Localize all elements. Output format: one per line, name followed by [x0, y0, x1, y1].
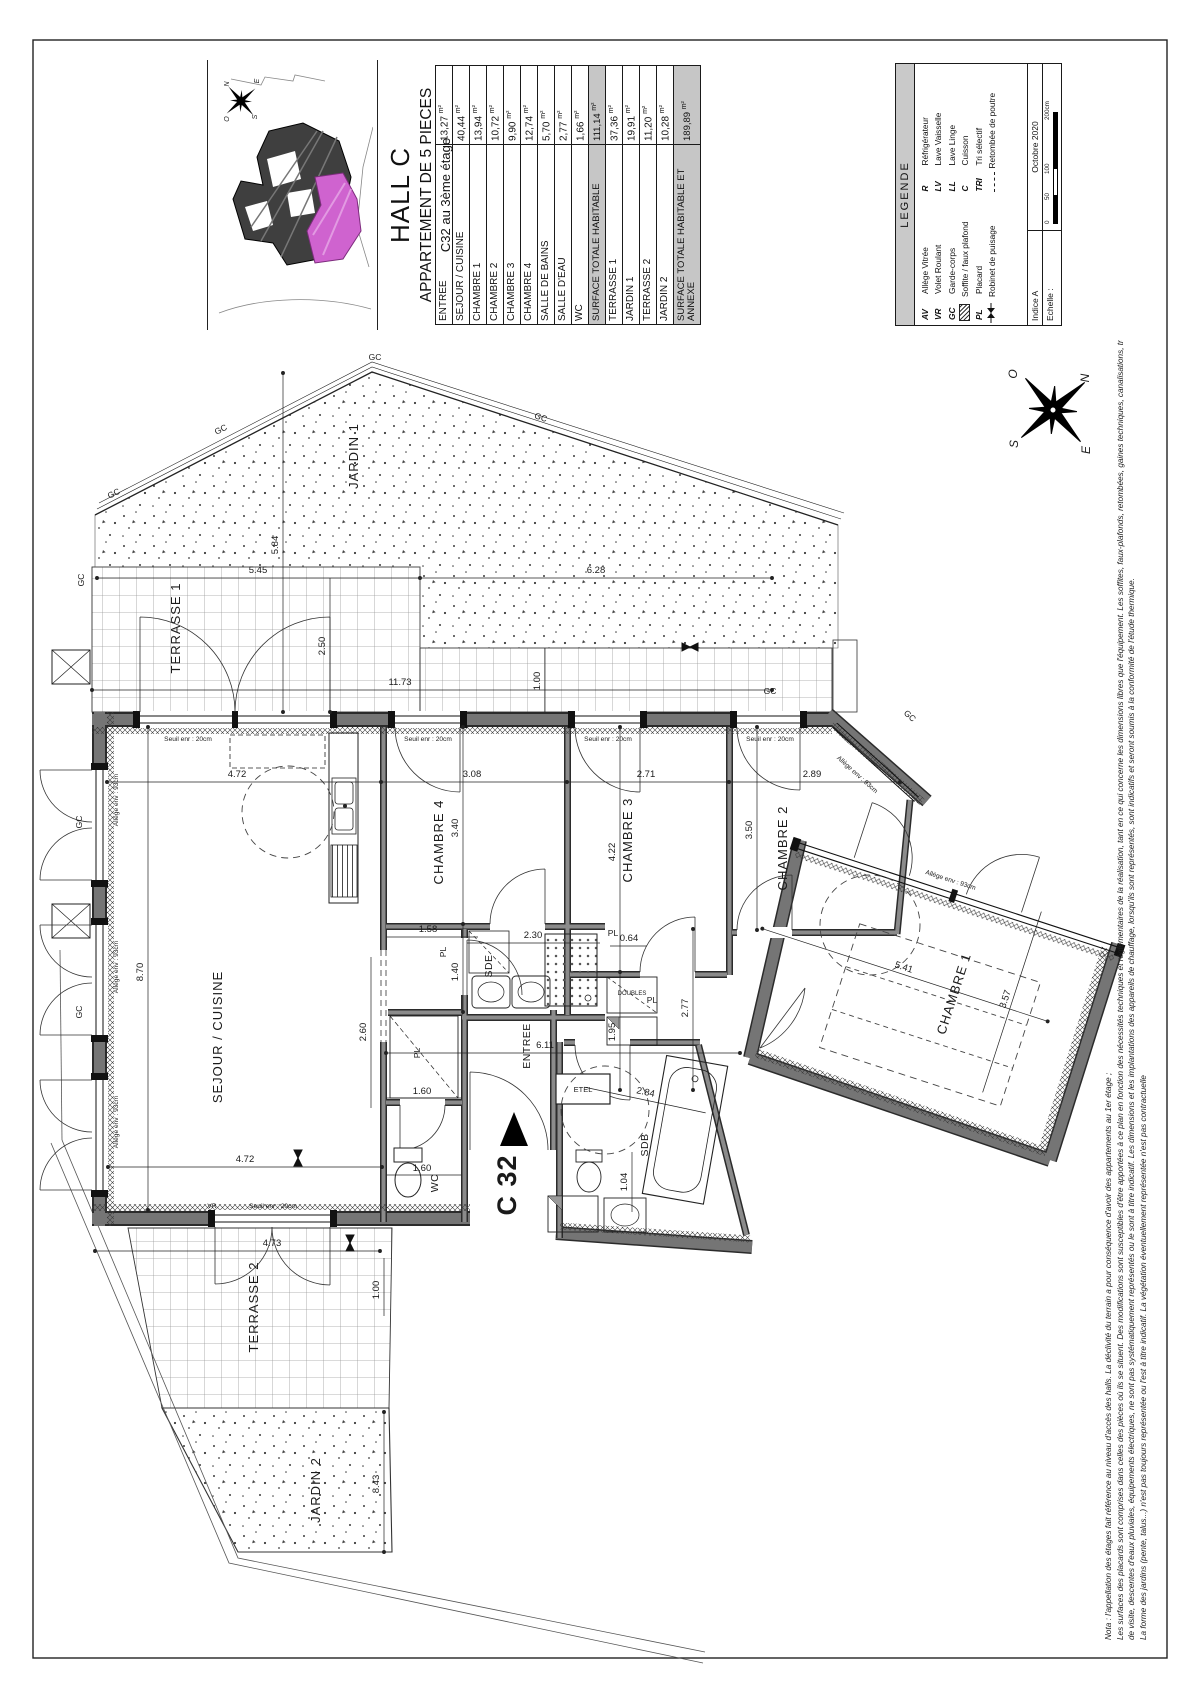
- dim-label: 2.84: [635, 1085, 655, 1100]
- doubles-label: DOUBLES: [618, 991, 647, 997]
- table-row: CHAMBRE 113,94 m²: [470, 66, 487, 325]
- dim-label: 3.40: [450, 819, 461, 838]
- vr-label: VR: [207, 1203, 216, 1210]
- dim-label: 1.04: [619, 1173, 630, 1192]
- separator: [207, 60, 208, 330]
- entrance-marker: [500, 1112, 528, 1146]
- legend-item: Soffite / faux plafond: [959, 195, 973, 324]
- areas-table: ENTREE13,27 m² SEJOUR / CUISINE40,44 m² …: [435, 65, 701, 325]
- legend-item: LVLave Vaisselle: [932, 66, 946, 195]
- legend-item: CCuisson: [959, 66, 973, 195]
- dim-label: 4.73: [263, 1238, 282, 1249]
- dim-label: 3.08: [463, 769, 482, 780]
- unit-number-label: C 32: [492, 1154, 522, 1215]
- dim-label: 1.60: [413, 1163, 432, 1174]
- dim-label: 2.77: [680, 999, 691, 1018]
- table-row: CHAMBRE 412,74 m²: [521, 66, 538, 325]
- pl-label: PL: [647, 995, 658, 1005]
- legend-item: Retombée de poutre: [986, 66, 1000, 195]
- table-row: JARDIN 210,28 m²: [657, 66, 674, 325]
- dim-label: 2.60: [358, 1023, 369, 1042]
- table-row: TERRASSE 211,20 m²: [640, 66, 657, 325]
- room-label-terrasse1: TERRASSE 1: [168, 583, 183, 674]
- beam-dash-icon: [994, 173, 995, 193]
- table-row: SEJOUR / CUISINE40,44 m²: [453, 66, 470, 325]
- dim-label: 4.22: [607, 843, 618, 862]
- dim-label: 3.50: [744, 821, 755, 840]
- legend-item: GCGarde-corps: [945, 195, 959, 324]
- room-label-terrasse2: TERRASSE 2: [246, 1262, 261, 1353]
- compass-o: O: [1006, 369, 1020, 378]
- pl-label: PL: [412, 1048, 422, 1059]
- plan-sheet: 5.45 6.28 2.50 5.84 11.73 1.00 4.72 3.08…: [0, 0, 1200, 1698]
- table-row: SALLE DE BAINS5,70 m²: [538, 66, 555, 325]
- gc-label: GC: [74, 816, 84, 829]
- dim-label: 5.41: [893, 960, 914, 976]
- legend-item: Robinet de puisage: [986, 195, 1000, 324]
- dim-label: 3.57: [998, 989, 1014, 1010]
- dim-label: 8.70: [135, 963, 146, 982]
- dim-label: 5.45: [249, 565, 268, 576]
- room-label-ch1: CHAMBRE 1: [933, 951, 973, 1036]
- seuil-label: Seuil enr : 20cm: [404, 736, 452, 743]
- legend: LEGENDE AVAllège Vitrée VRVolet Roulant …: [895, 63, 1062, 326]
- dim-label: 4.72: [228, 769, 247, 780]
- gc-label: GC: [369, 352, 382, 362]
- dim-label: 1.58: [419, 924, 438, 935]
- legend-item: VRVolet Roulant: [932, 195, 946, 324]
- room-label-sejour: SEJOUR / CUISINE: [210, 971, 225, 1103]
- compass-n: N: [1078, 373, 1092, 382]
- separator: [377, 60, 378, 330]
- legend-left-column: AVAllège Vitrée VRVolet Roulant GCGarde-…: [918, 195, 999, 324]
- dim-label: 6.28: [587, 565, 606, 576]
- hall-title: HALL C: [385, 60, 416, 330]
- legend-item: RRéfrigérateur: [918, 66, 932, 195]
- soffite-hatch-icon: [959, 304, 970, 321]
- note-line: Les surfaces des placards sont comprises…: [1115, 340, 1127, 1640]
- tap-icon: [986, 303, 996, 323]
- gc-label: GC: [533, 410, 548, 423]
- gc-label: GC: [76, 574, 86, 587]
- dim-label: 2.30: [524, 930, 543, 941]
- chambre1-window-wall: [788, 783, 1143, 964]
- etel-label: ETEL: [574, 1085, 593, 1094]
- compass-s: S: [1007, 440, 1021, 448]
- allege-label: Allège env : 93cm: [113, 1095, 120, 1148]
- dim-label: 2.89: [803, 769, 822, 780]
- table-row: TERRASSE 137,36 m²: [606, 66, 623, 325]
- room-label-wc: WC: [429, 1174, 441, 1193]
- scale-bar: [1053, 70, 1058, 224]
- notes-block: Nota : l'appellation des étages fait réf…: [1103, 340, 1157, 1640]
- dim-label: 1.00: [371, 1281, 382, 1300]
- note-line: Nota : l'appellation des étages fait réf…: [1103, 340, 1115, 1640]
- table-row: CHAMBRE 39,90 m²: [504, 66, 521, 325]
- seuil-label: Seuil enr : 20cm: [584, 736, 632, 743]
- room-label-sdb: SDB: [639, 1133, 651, 1156]
- compass-rose: N E S O: [994, 351, 1113, 470]
- dim-label: 5.84: [270, 536, 281, 555]
- dim-label: 1.00: [532, 672, 543, 691]
- seuil-label: Seuil enr : 20cm: [249, 1203, 297, 1210]
- date-label: Octobre 2020: [1028, 64, 1042, 230]
- dim-label: 1.95: [607, 1023, 618, 1042]
- gc-label: GC: [213, 422, 229, 437]
- legend-item: PLPlacard: [972, 195, 986, 324]
- allege-label: Allège env : 93cm: [113, 940, 120, 993]
- room-label-sde: SDE: [483, 954, 495, 977]
- dim-label: 0.64: [620, 933, 639, 944]
- room-label-ch4: CHAMBRE 4: [431, 800, 446, 885]
- dim-label: 1.60: [413, 1086, 432, 1097]
- seuil-label: Seuil enr : 20cm: [746, 736, 794, 743]
- gc-label: GC: [902, 708, 918, 724]
- gc-label: GC: [106, 486, 122, 501]
- room-label-entree: ENTREE: [521, 1023, 533, 1069]
- sde-fixtures: [469, 931, 657, 1045]
- dim-label: 6.11: [536, 1040, 554, 1051]
- legend-footer: Indice A Octobre 2020 Echelle : 0 50 100…: [1027, 64, 1061, 325]
- site-key-plan: N E S O: [211, 63, 373, 327]
- scale-label: Echelle :: [1043, 230, 1061, 325]
- table-row-total-habitable: SURFACE TOTALE HABITABLE111,14 m²: [589, 66, 606, 325]
- table-row-total-annexe: SURFACE TOTALE HABITABLE ET ANNEXE189,89…: [674, 66, 701, 325]
- table-row: JARDIN 119,91 m²: [623, 66, 640, 325]
- room-label-jardin1: JARDIN 1: [346, 423, 361, 489]
- table-row: SALLE D'EAU2,77 m²: [555, 66, 572, 325]
- left-structures: [52, 650, 90, 938]
- apartment-type-title: APPARTEMENT DE 5 PIECES: [418, 60, 436, 330]
- note-line: La forme des jardins (pente, talus...) n…: [1138, 340, 1150, 1640]
- legend-title: LEGENDE: [896, 64, 915, 325]
- pl-label: PL: [438, 947, 448, 958]
- compass-e: E: [1079, 445, 1093, 454]
- dim-label: 1.40: [450, 963, 461, 982]
- dim-label: 8.43: [371, 1475, 382, 1494]
- note-line: de visite, descentes d'eaux pluviales, é…: [1126, 340, 1138, 1640]
- site-compass-s: S: [252, 114, 259, 119]
- table-row: WC1,66 m²: [572, 66, 589, 325]
- site-compass-o: O: [224, 116, 231, 122]
- pl-label: PL: [608, 928, 619, 938]
- dim-label: 2.50: [317, 637, 328, 656]
- room-label-jardin2: JARDIN 2: [308, 1457, 323, 1523]
- legend-right-column: RRéfrigérateur LVLave Vaisselle LLLave L…: [918, 66, 999, 195]
- table-row: CHAMBRE 210,72 m²: [487, 66, 504, 325]
- garden-2: [162, 1408, 392, 1552]
- site-compass-e: E: [254, 78, 261, 83]
- legend-item: TRITri sélectif: [972, 66, 986, 195]
- legend-item: AVAllège Vitrée: [918, 195, 932, 324]
- legend-item: LLLave Linge: [945, 66, 959, 195]
- gc-label: GC: [764, 686, 777, 696]
- allege-label: Allège env : 93cm: [924, 869, 976, 892]
- title-block: N E S O HALL C APPARTEMENT DE 5 PIECES C…: [33, 60, 1163, 330]
- table-row: ENTREE13,27 m²: [436, 66, 453, 325]
- site-compass-n: N: [224, 81, 231, 87]
- seuil-label: Seuil enr : 20cm: [164, 736, 212, 743]
- dim-label: 11.73: [388, 677, 411, 688]
- windows: [91, 711, 807, 1227]
- room-label-ch3: CHAMBRE 3: [620, 798, 635, 883]
- dim-label: 4.72: [236, 1154, 255, 1165]
- gc-label: GC: [74, 1006, 84, 1019]
- indice-label: Indice A: [1028, 230, 1042, 325]
- dim-label: 2.71: [637, 769, 656, 780]
- scale-ticks: 0 50 100 200cm: [1044, 70, 1053, 224]
- kitchen-fixtures: [230, 733, 358, 903]
- allege-label: Allège env : 93cm: [113, 773, 120, 826]
- room-label-ch2: CHAMBRE 2: [775, 806, 790, 891]
